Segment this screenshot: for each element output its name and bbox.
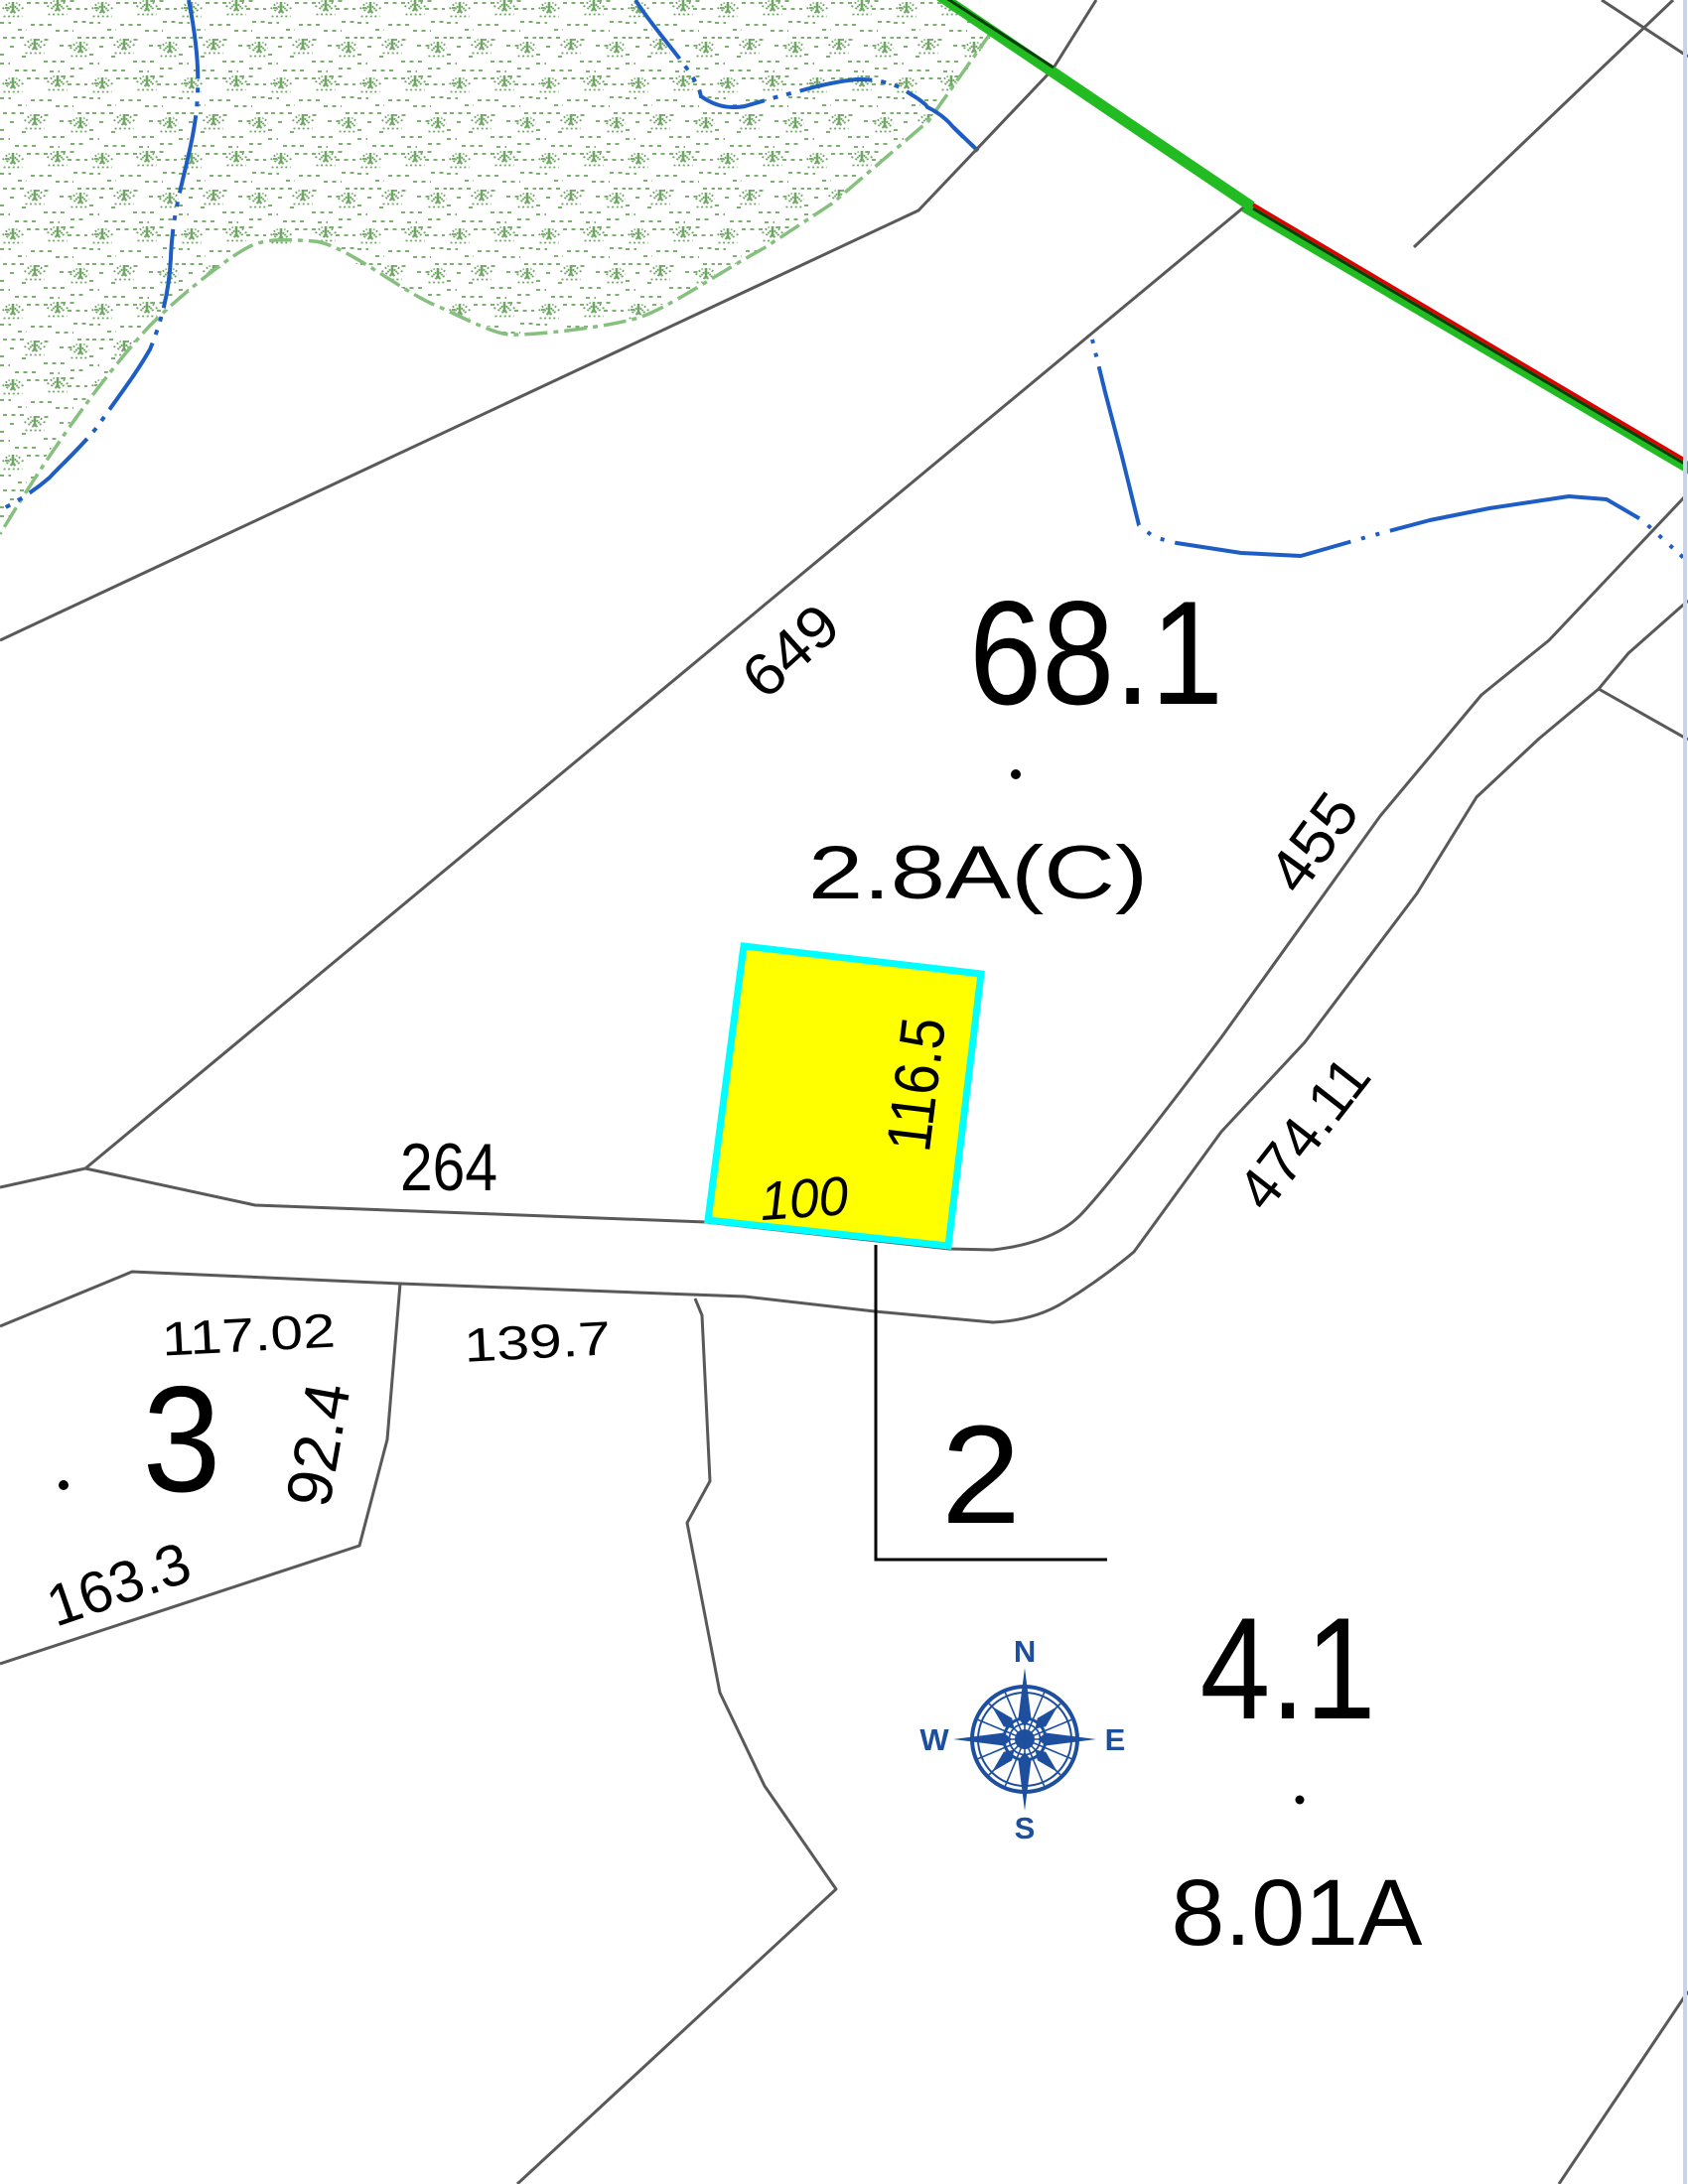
svg-text:117.02: 117.02	[160, 1304, 337, 1366]
svg-text:N: N	[1014, 1634, 1036, 1669]
svg-text:2: 2	[941, 1396, 1021, 1553]
svg-text:139.7: 139.7	[463, 1312, 613, 1373]
svg-text:264: 264	[400, 1130, 497, 1205]
svg-text:E: E	[1105, 1722, 1126, 1757]
svg-text:8.01A: 8.01A	[1172, 1860, 1424, 1966]
svg-text:100: 100	[758, 1164, 851, 1232]
svg-text:68.1: 68.1	[969, 570, 1223, 736]
svg-text:S: S	[1015, 1811, 1036, 1845]
svg-text:4.1: 4.1	[1200, 1587, 1376, 1749]
svg-text:W: W	[919, 1722, 949, 1757]
svg-text:2.8A(C): 2.8A(C)	[808, 831, 1148, 915]
svg-text:3: 3	[143, 1355, 221, 1524]
